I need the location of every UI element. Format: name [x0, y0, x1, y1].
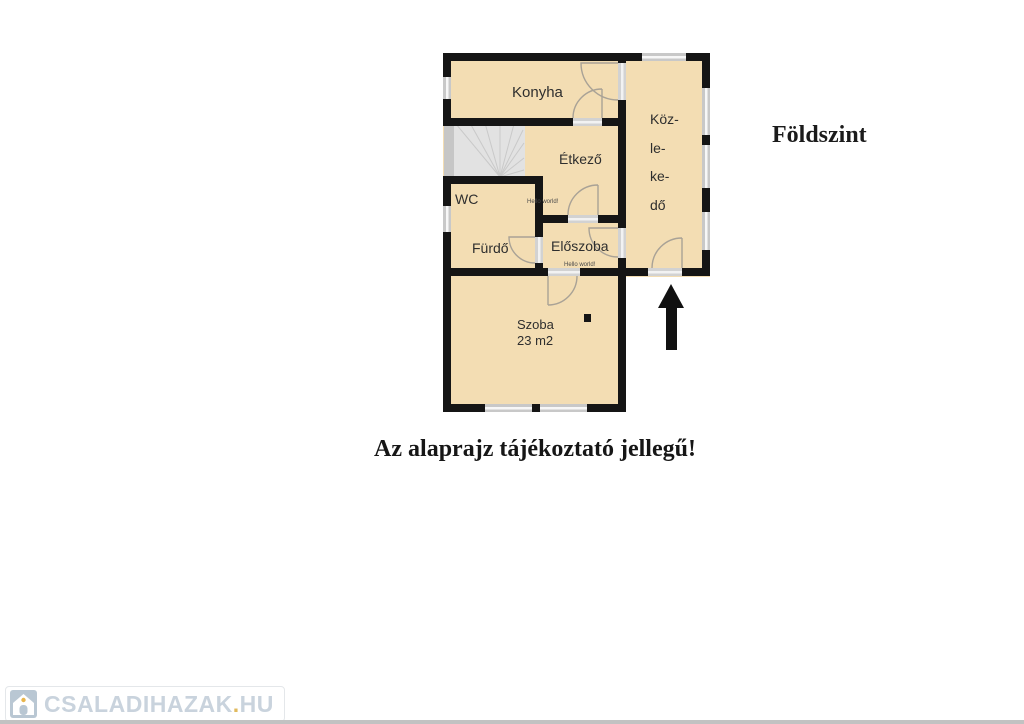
- room-label-etkezo: Étkező: [559, 151, 602, 167]
- room-label-konyha: Konyha: [512, 84, 563, 101]
- szoba-area: 23 m2: [517, 333, 554, 349]
- hello-world-watermark: Hello world!: [527, 199, 558, 205]
- staircase: [444, 123, 525, 177]
- room-label-wc: WC: [455, 191, 478, 207]
- kozlekedo-line: Köz-: [650, 105, 679, 134]
- brand-tld: HU: [240, 691, 274, 717]
- hello-world-watermark: Hello world!: [564, 262, 595, 268]
- kozlekedo-line: ke-: [650, 162, 679, 191]
- kozlekedo-line: le-: [650, 134, 679, 163]
- room-label-kozlekedo: Köz- le- ke- dő: [650, 105, 679, 219]
- kozlekedo-line: dő: [650, 191, 679, 220]
- room-label-furdo: Fürdő: [472, 240, 509, 256]
- plan-caption: Az alaprajz tájékoztató jellegű!: [365, 436, 705, 463]
- floor-plan-drawing: [0, 0, 1024, 724]
- room-label-eloszoba: Előszoba: [551, 238, 609, 254]
- room-label-szoba: Szoba 23 m2: [517, 317, 554, 349]
- house-logo-icon: [10, 690, 37, 718]
- floorplan-page: Konyha Étkező WC Fürdő Előszoba Szoba 23…: [0, 0, 1024, 724]
- brand-site: CSALADIHAZAK: [44, 691, 233, 717]
- wall-stub-dot: [584, 314, 591, 322]
- screenshot-bottom-edge: [0, 720, 1024, 724]
- szoba-name: Szoba: [517, 317, 554, 333]
- brand-dot: .: [233, 691, 240, 717]
- site-watermark-text: CSALADIHAZAK.HU: [44, 691, 274, 718]
- floor-title: Földszint: [772, 122, 867, 149]
- entrance-arrow-icon: [658, 284, 684, 350]
- site-watermark: CSALADIHAZAK.HU: [5, 686, 285, 722]
